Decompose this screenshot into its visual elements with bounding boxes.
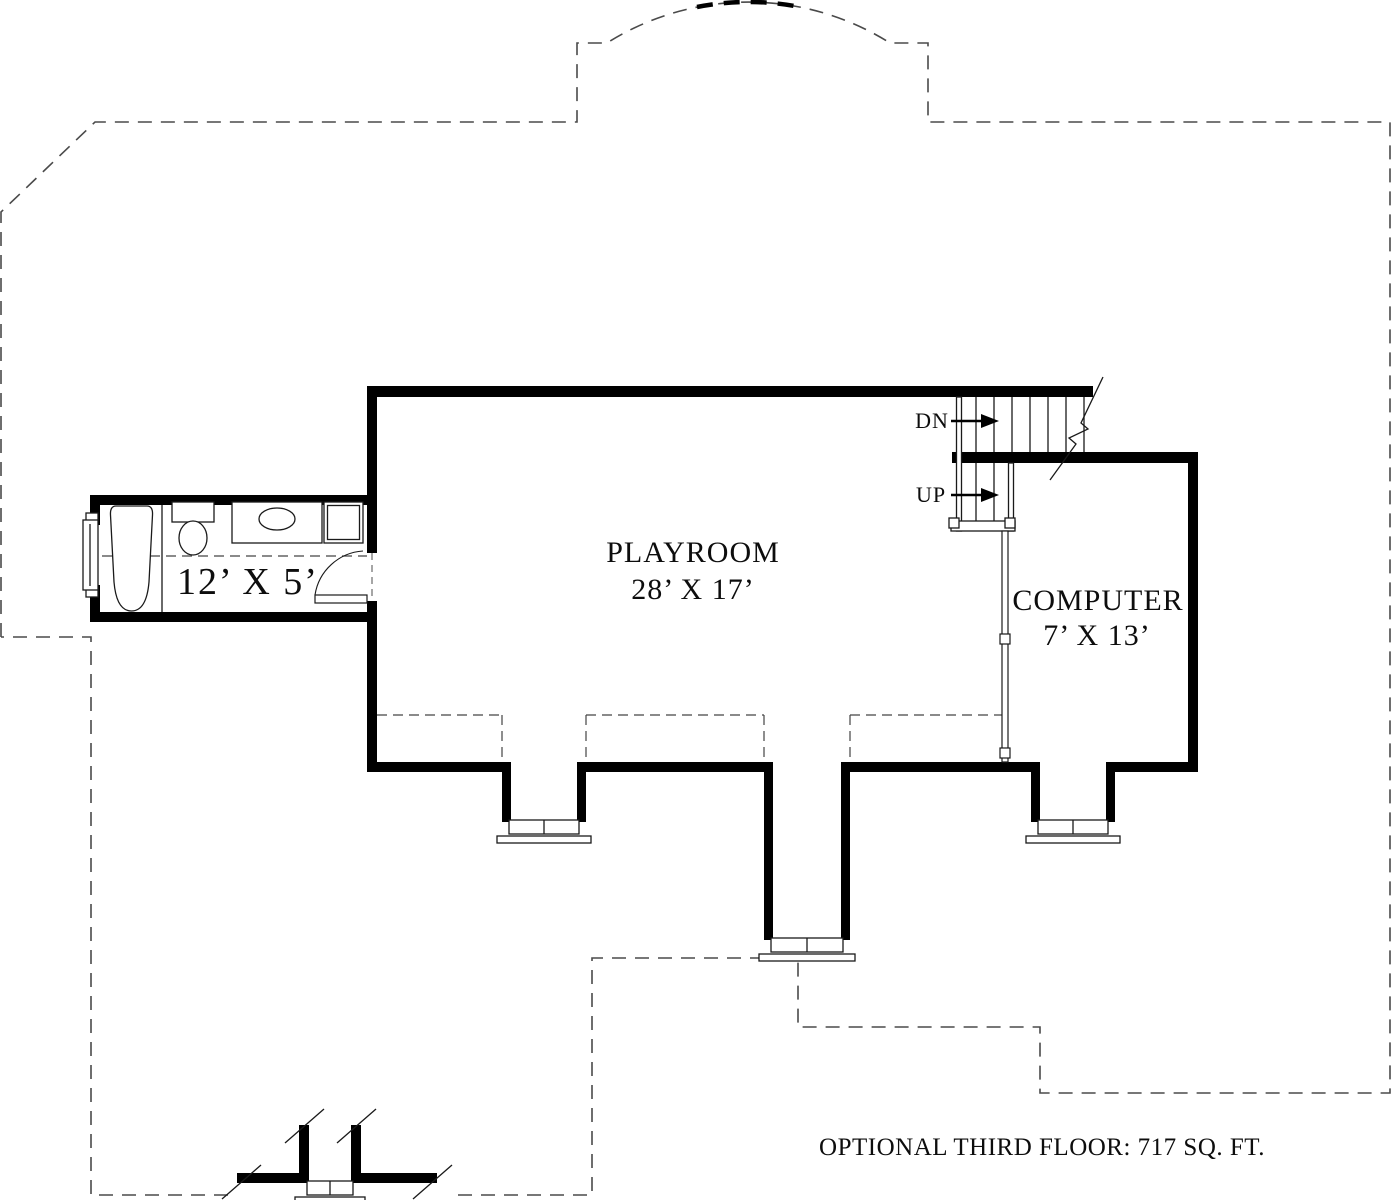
staircase [949,397,1084,531]
toilet-tank [172,502,214,522]
playroom-dimensions: 28’ X 17’ [631,573,754,607]
computer-room-label: COMPUTER [1012,584,1183,618]
bathroom-door [315,551,372,603]
floor-plan: PLAYROOM 28’ X 17’ COMPUTER 7’ X 13’ 12’… [0,0,1392,1200]
linen-cabinet-inner [328,506,360,540]
toilet-bowl [179,521,207,555]
railing [1000,531,1010,762]
vanity-sink [259,508,295,530]
playroom-label: PLAYROOM [606,536,780,570]
stair-up-label: UP [916,482,946,508]
computer-room-dimensions: 7’ X 13’ [1043,619,1150,653]
plan-title: OPTIONAL THIRD FLOOR: 717 SQ. FT. [819,1134,1265,1162]
stair-down-label: DN [915,408,949,434]
bathroom-dimensions: 12’ X 5’ [177,560,319,604]
bathtub [110,506,152,611]
